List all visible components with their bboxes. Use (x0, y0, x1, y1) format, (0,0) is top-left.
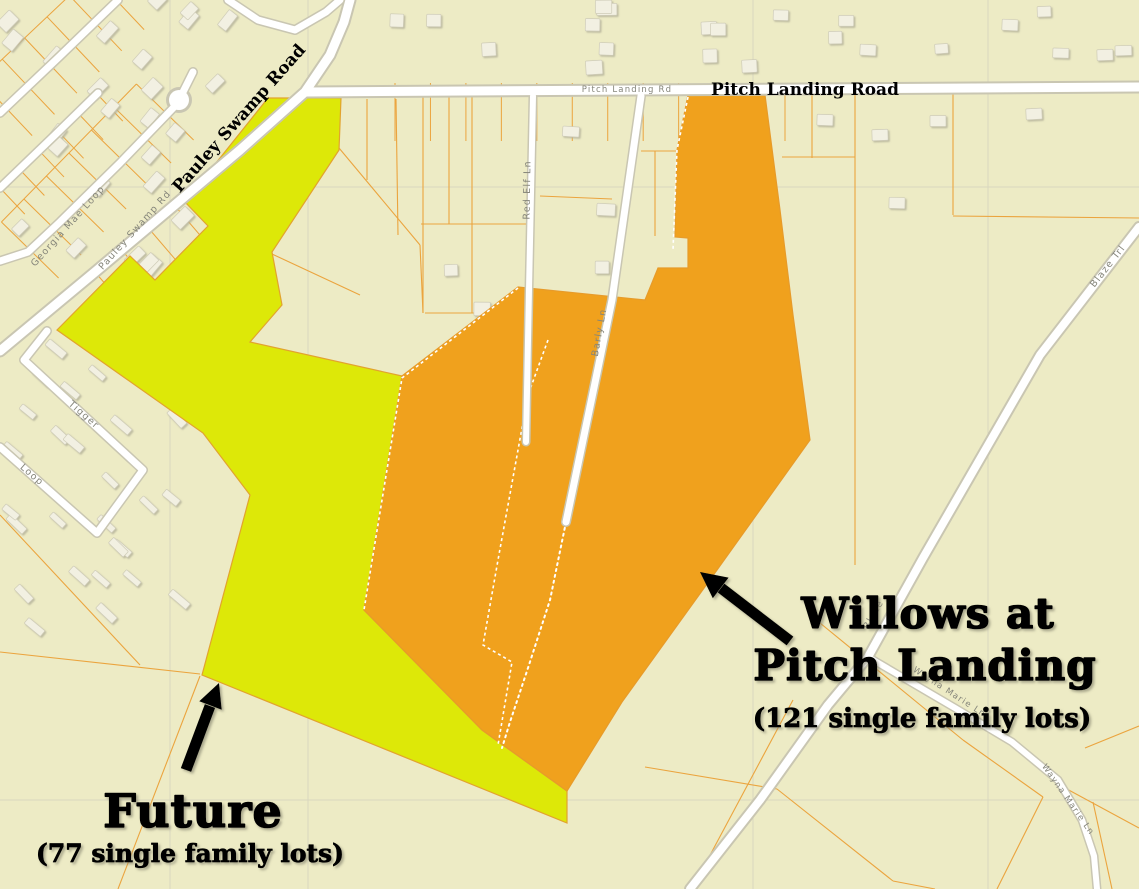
building-footprint (872, 129, 888, 141)
building-footprint (742, 59, 758, 72)
building-footprint (1053, 48, 1069, 58)
road-label-red-elf-ln: Red Elf Ln (521, 160, 533, 220)
building-footprint (773, 10, 788, 21)
building-footprint (935, 43, 949, 54)
building-footprint (839, 15, 854, 26)
building-footprint (1097, 49, 1113, 60)
future-label: Future (103, 784, 283, 838)
road-name-pitch-landing-road: Pitch Landing Road (711, 80, 899, 100)
building-footprint (1026, 108, 1043, 120)
building-footprint (1037, 6, 1051, 17)
building-footprint (703, 49, 718, 63)
building-footprint (711, 23, 726, 36)
building-footprint (828, 31, 842, 44)
building-footprint (596, 203, 615, 216)
building-footprint (427, 14, 441, 27)
building-footprint (1115, 45, 1132, 55)
willows-lot-count-label: (121 single family lots) (753, 704, 1091, 734)
willows-label-line2: Pitch Landing (753, 641, 1096, 690)
building-footprint (585, 18, 600, 31)
building-footprint (817, 114, 833, 126)
building-footprint (390, 14, 404, 28)
building-footprint (585, 60, 602, 75)
building-footprint (930, 115, 946, 126)
building-footprint (562, 126, 579, 137)
willows-label-line1: Willows at (800, 589, 1054, 638)
map-canvas: Pitch Landing Rd Pauley Swamp Rd Georgia… (0, 0, 1139, 889)
building-footprint (444, 264, 458, 276)
building-footprint (860, 44, 877, 56)
parcel-map: Pitch Landing Rd Pauley Swamp Rd Georgia… (0, 0, 1139, 889)
building-footprint (1002, 19, 1018, 31)
road-label-pitch-landing-rd: Pitch Landing Rd (582, 85, 672, 95)
building-footprint (889, 197, 905, 208)
future-lot-count-label: (77 single family lots) (36, 839, 344, 868)
building-footprint (482, 42, 497, 56)
building-footprint (595, 261, 609, 274)
building-footprint (599, 42, 614, 55)
building-footprint (595, 0, 611, 13)
